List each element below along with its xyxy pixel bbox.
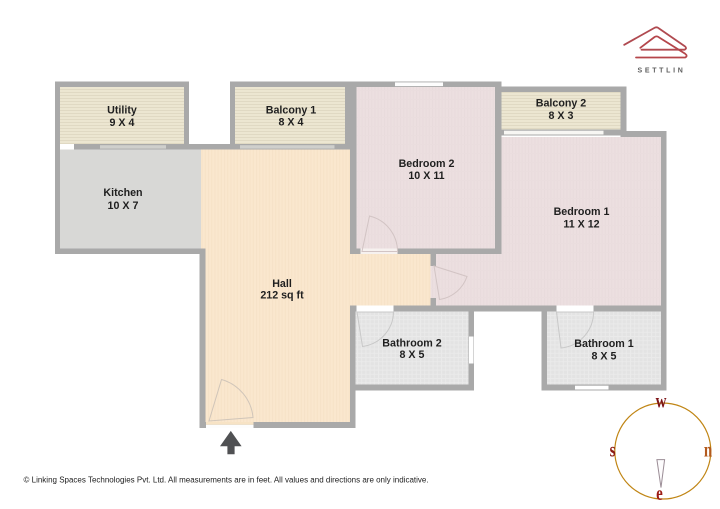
svg-text:11 X 12: 11 X 12 bbox=[563, 219, 599, 231]
svg-text:Bathroom 2: Bathroom 2 bbox=[382, 338, 441, 350]
svg-text:Balcony 2: Balcony 2 bbox=[536, 98, 587, 110]
svg-text:9 X 4: 9 X 4 bbox=[110, 117, 135, 129]
svg-text:Bedroom 1: Bedroom 1 bbox=[554, 206, 610, 218]
svg-text:8 X 4: 8 X 4 bbox=[279, 117, 304, 129]
svg-text:Kitchen: Kitchen bbox=[103, 187, 142, 199]
svg-text:s: s bbox=[610, 438, 616, 461]
svg-text:Utility: Utility bbox=[107, 105, 137, 117]
svg-text:212 sq ft: 212 sq ft bbox=[260, 290, 304, 302]
svg-text:8 X 3: 8 X 3 bbox=[549, 110, 574, 122]
svg-text:e: e bbox=[656, 482, 663, 505]
svg-text:w: w bbox=[656, 389, 667, 412]
svg-text:8 X 5: 8 X 5 bbox=[592, 351, 617, 363]
svg-text:Hall: Hall bbox=[272, 278, 292, 290]
svg-text:n: n bbox=[704, 438, 712, 461]
svg-text:SETTLIN: SETTLIN bbox=[637, 67, 685, 74]
svg-text:Bathroom 1: Bathroom 1 bbox=[574, 338, 633, 350]
svg-text:8 X 5: 8 X 5 bbox=[400, 349, 425, 361]
svg-text:Bedroom 2: Bedroom 2 bbox=[399, 158, 455, 170]
svg-text:© Linking Spaces Technologies: © Linking Spaces Technologies Pvt. Ltd. … bbox=[24, 476, 429, 485]
svg-text:10 X 11: 10 X 11 bbox=[408, 170, 444, 182]
svg-text:10 X 7: 10 X 7 bbox=[108, 200, 139, 212]
svg-text:Balcony 1: Balcony 1 bbox=[266, 105, 317, 117]
